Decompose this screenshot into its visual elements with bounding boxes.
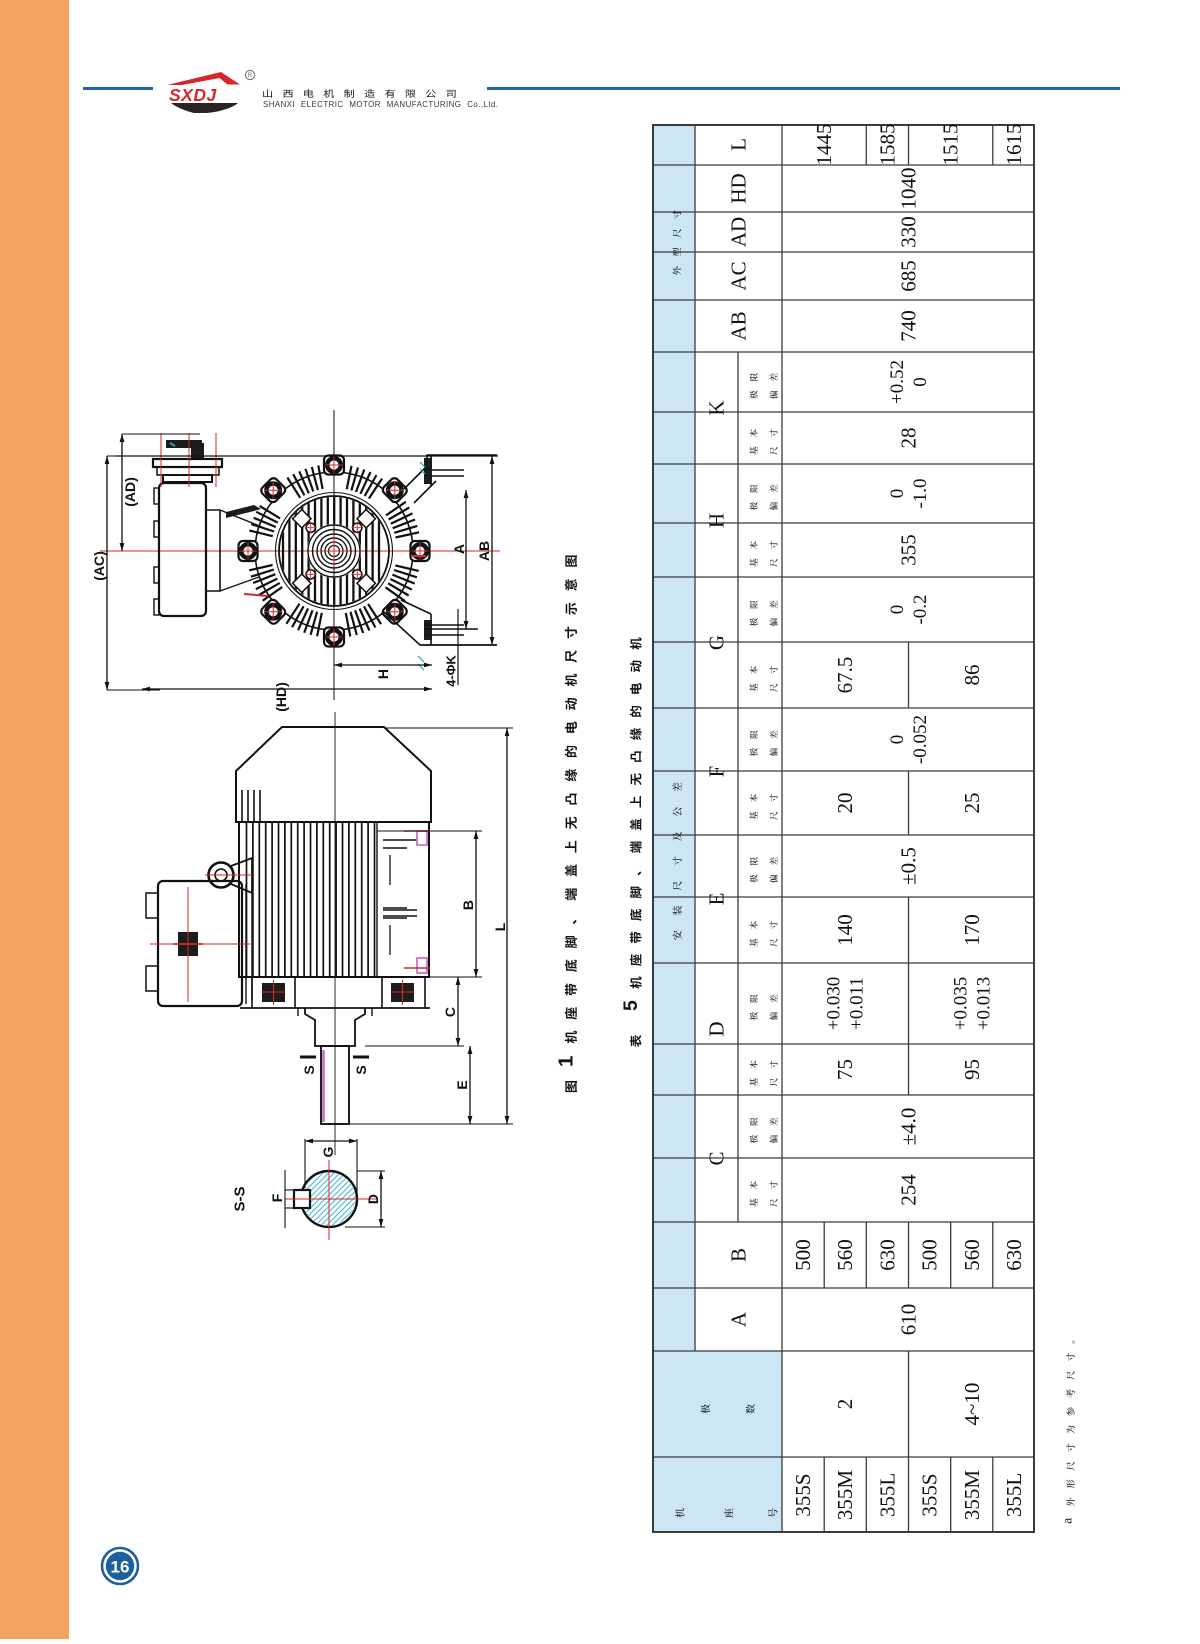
svg-text:67.5: 67.5 — [833, 657, 857, 694]
svg-text:±0.5: ±0.5 — [897, 847, 921, 885]
svg-text:560: 560 — [960, 1239, 984, 1271]
svg-text:1615: 1615 — [1002, 124, 1026, 166]
svg-text:AB: AB — [727, 311, 751, 340]
svg-text:(AC): (AC) — [91, 551, 107, 581]
svg-text:a: a — [1060, 1518, 1075, 1524]
svg-text:0: 0 — [887, 735, 908, 745]
svg-text:0: 0 — [887, 605, 908, 615]
svg-text:SHANXI ELECTRIC MOTOR MANUFACT: SHANXI ELECTRIC MOTOR MANUFACTURING Co.,… — [263, 100, 498, 109]
svg-text:20: 20 — [833, 793, 857, 814]
svg-text:D: D — [365, 1194, 381, 1204]
svg-text:560: 560 — [833, 1239, 857, 1271]
svg-text:+0.030: +0.030 — [824, 977, 845, 1030]
svg-text:16: 16 — [111, 1558, 130, 1577]
svg-text:HD: HD — [727, 173, 751, 203]
svg-text:S: S — [353, 1065, 369, 1074]
svg-text:4-ΦK: 4-ΦK — [444, 655, 459, 687]
svg-text:170: 170 — [960, 914, 984, 946]
svg-text:E: E — [705, 893, 729, 906]
svg-text:B: B — [460, 900, 476, 910]
svg-text:86: 86 — [960, 665, 984, 686]
svg-text:1: 1 — [555, 1056, 578, 1067]
svg-text:S-S: S-S — [232, 1186, 249, 1211]
svg-text:355S: 355S — [791, 1473, 815, 1516]
svg-text:95: 95 — [960, 1059, 984, 1080]
svg-text:-0.2: -0.2 — [910, 594, 931, 624]
svg-text:254: 254 — [897, 1174, 921, 1206]
svg-text:355M: 355M — [833, 1470, 857, 1521]
svg-text:-0.052: -0.052 — [910, 715, 931, 764]
svg-text:740: 740 — [897, 310, 921, 342]
svg-text:A: A — [727, 1311, 751, 1327]
svg-text:F: F — [705, 766, 729, 778]
svg-text:355L: 355L — [875, 1473, 899, 1517]
svg-text:4~10: 4~10 — [960, 1383, 984, 1426]
svg-text:AC: AC — [727, 261, 751, 290]
svg-text:1585: 1585 — [875, 124, 899, 166]
svg-text:L: L — [727, 138, 751, 151]
svg-text:(AD): (AD) — [122, 477, 138, 507]
svg-text:S: S — [301, 1065, 317, 1074]
svg-text:630: 630 — [875, 1239, 899, 1271]
svg-text:G: G — [320, 1146, 336, 1157]
svg-text:AD: AD — [727, 217, 751, 247]
svg-text:355: 355 — [897, 534, 921, 566]
svg-text:0: 0 — [887, 489, 908, 499]
svg-text:630: 630 — [1002, 1239, 1026, 1271]
svg-text:G: G — [705, 635, 729, 650]
svg-text:+0.013: +0.013 — [973, 977, 994, 1030]
svg-text:L: L — [492, 922, 508, 931]
svg-text:610: 610 — [897, 1304, 921, 1336]
svg-text:+0.035: +0.035 — [950, 977, 971, 1030]
svg-text:140: 140 — [833, 914, 857, 946]
svg-text:500: 500 — [791, 1239, 815, 1271]
svg-text:28: 28 — [897, 428, 921, 449]
svg-text:R: R — [248, 72, 253, 79]
svg-text:C: C — [442, 1007, 458, 1017]
svg-text:-1.0: -1.0 — [910, 478, 931, 508]
svg-text:1445: 1445 — [812, 124, 836, 166]
svg-text:E: E — [454, 1080, 470, 1089]
svg-text:685: 685 — [897, 260, 921, 292]
svg-text:330: 330 — [897, 216, 921, 248]
svg-text:355M: 355M — [960, 1470, 984, 1521]
svg-text:355S: 355S — [918, 1473, 942, 1516]
svg-text:2: 2 — [833, 1399, 857, 1410]
svg-text:F: F — [269, 1193, 285, 1202]
svg-text:500: 500 — [918, 1239, 942, 1271]
svg-text:5: 5 — [620, 1000, 642, 1011]
svg-text:355L: 355L — [1002, 1473, 1026, 1517]
svg-text:A: A — [451, 544, 467, 554]
svg-text:+0.011: +0.011 — [847, 977, 868, 1030]
svg-text:1515: 1515 — [939, 124, 963, 166]
svg-text:25: 25 — [960, 793, 984, 814]
svg-text:H: H — [705, 513, 729, 528]
svg-text:SXDJ: SXDJ — [169, 85, 217, 105]
svg-text:75: 75 — [833, 1059, 857, 1080]
svg-text:B: B — [727, 1248, 751, 1262]
svg-text:±4.0: ±4.0 — [897, 1108, 921, 1146]
svg-text:(HD): (HD) — [273, 682, 289, 712]
svg-text:H: H — [375, 669, 391, 679]
svg-text:1040: 1040 — [897, 168, 921, 210]
svg-text:D: D — [705, 1021, 729, 1036]
svg-text:+0.52: +0.52 — [887, 360, 908, 404]
svg-text:AB: AB — [476, 541, 492, 561]
svg-text:K: K — [705, 400, 729, 415]
svg-text:C: C — [705, 1151, 729, 1165]
svg-text:0: 0 — [910, 377, 931, 387]
